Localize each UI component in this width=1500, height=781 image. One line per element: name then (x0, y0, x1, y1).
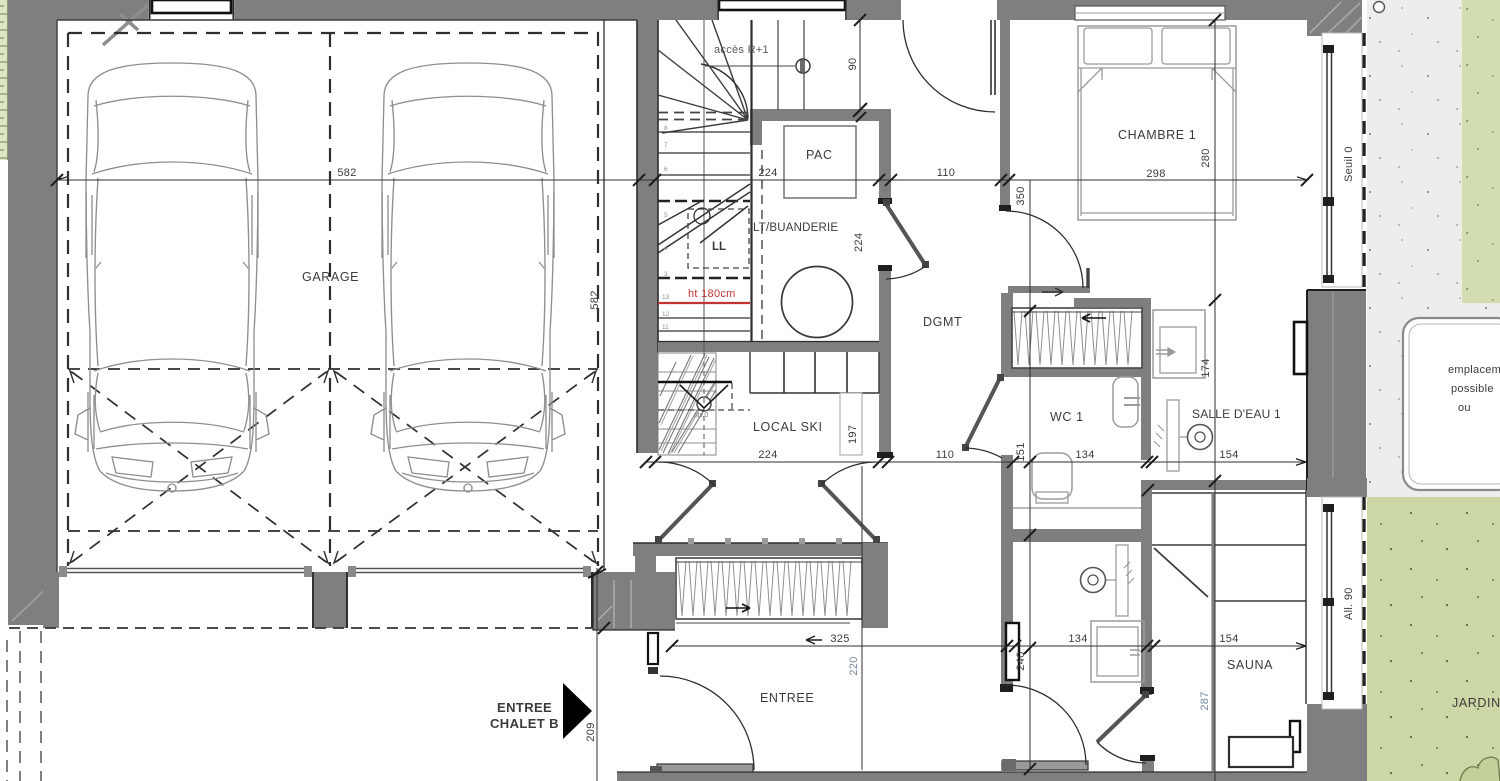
svg-text:ht 180cm: ht 180cm (688, 288, 736, 300)
svg-text:LL: LL (712, 241, 726, 253)
svg-text:174: 174 (1200, 358, 1212, 377)
svg-text:325: 325 (830, 633, 849, 645)
svg-text:SALLE D'EAU 1: SALLE D'EAU 1 (1192, 407, 1281, 421)
svg-text:224: 224 (758, 167, 777, 179)
svg-text:13: 13 (662, 294, 670, 301)
svg-text:CHAMBRE 1: CHAMBRE 1 (1118, 128, 1196, 142)
svg-text:110: 110 (936, 449, 954, 461)
svg-text:LOCAL SKI: LOCAL SKI (753, 420, 823, 434)
svg-text:134: 134 (1068, 633, 1087, 645)
svg-text:DGMT: DGMT (923, 315, 962, 329)
svg-text:224: 224 (853, 233, 865, 252)
svg-text:LT/BUANDERIE: LT/BUANDERIE (753, 222, 838, 234)
svg-text:7: 7 (664, 142, 668, 149)
svg-text:287: 287 (1199, 691, 1211, 710)
svg-text:niv.0: niv.0 (694, 412, 708, 419)
svg-text:154: 154 (1219, 633, 1238, 645)
svg-text:3: 3 (664, 271, 668, 278)
svg-text:209: 209 (585, 722, 597, 741)
svg-text:90: 90 (847, 58, 859, 71)
svg-text:220: 220 (848, 656, 860, 675)
svg-text:ou: ou (1458, 402, 1471, 414)
svg-text:Seuil 0: Seuil 0 (1343, 146, 1355, 182)
svg-text:582: 582 (337, 167, 356, 179)
svg-text:ENTREE: ENTREE (760, 691, 814, 705)
svg-text:possible: possible (1451, 383, 1494, 395)
svg-text:accès R+1: accès R+1 (714, 44, 769, 56)
svg-text:SAUNA: SAUNA (1227, 658, 1273, 672)
svg-text:280: 280 (1200, 148, 1212, 167)
svg-text:224: 224 (758, 449, 777, 461)
svg-text:WC 1: WC 1 (1050, 410, 1084, 424)
svg-text:6: 6 (664, 166, 668, 173)
svg-text:298: 298 (1146, 168, 1165, 180)
svg-text:5: 5 (664, 212, 668, 219)
svg-text:PAC: PAC (806, 148, 833, 162)
svg-text:154: 154 (1219, 449, 1238, 461)
svg-text:134: 134 (1075, 449, 1094, 461)
svg-text:All. 90: All. 90 (1343, 587, 1355, 620)
svg-text:12: 12 (662, 311, 670, 318)
svg-text:ENTREE: ENTREE (497, 700, 552, 715)
svg-text:emplacem: emplacem (1448, 364, 1500, 376)
svg-text:240: 240 (1015, 651, 1027, 670)
svg-text:4: 4 (664, 245, 668, 252)
svg-text:582: 582 (589, 290, 601, 309)
svg-text:350: 350 (1015, 186, 1027, 205)
svg-text:8: 8 (664, 125, 668, 132)
svg-text:11: 11 (662, 324, 669, 331)
svg-text:CHALET B: CHALET B (490, 716, 559, 731)
svg-text:110: 110 (937, 167, 955, 179)
svg-text:197: 197 (847, 425, 859, 444)
svg-text:GARAGE: GARAGE (302, 270, 359, 284)
svg-text:JARDIN: JARDIN (1452, 696, 1500, 710)
